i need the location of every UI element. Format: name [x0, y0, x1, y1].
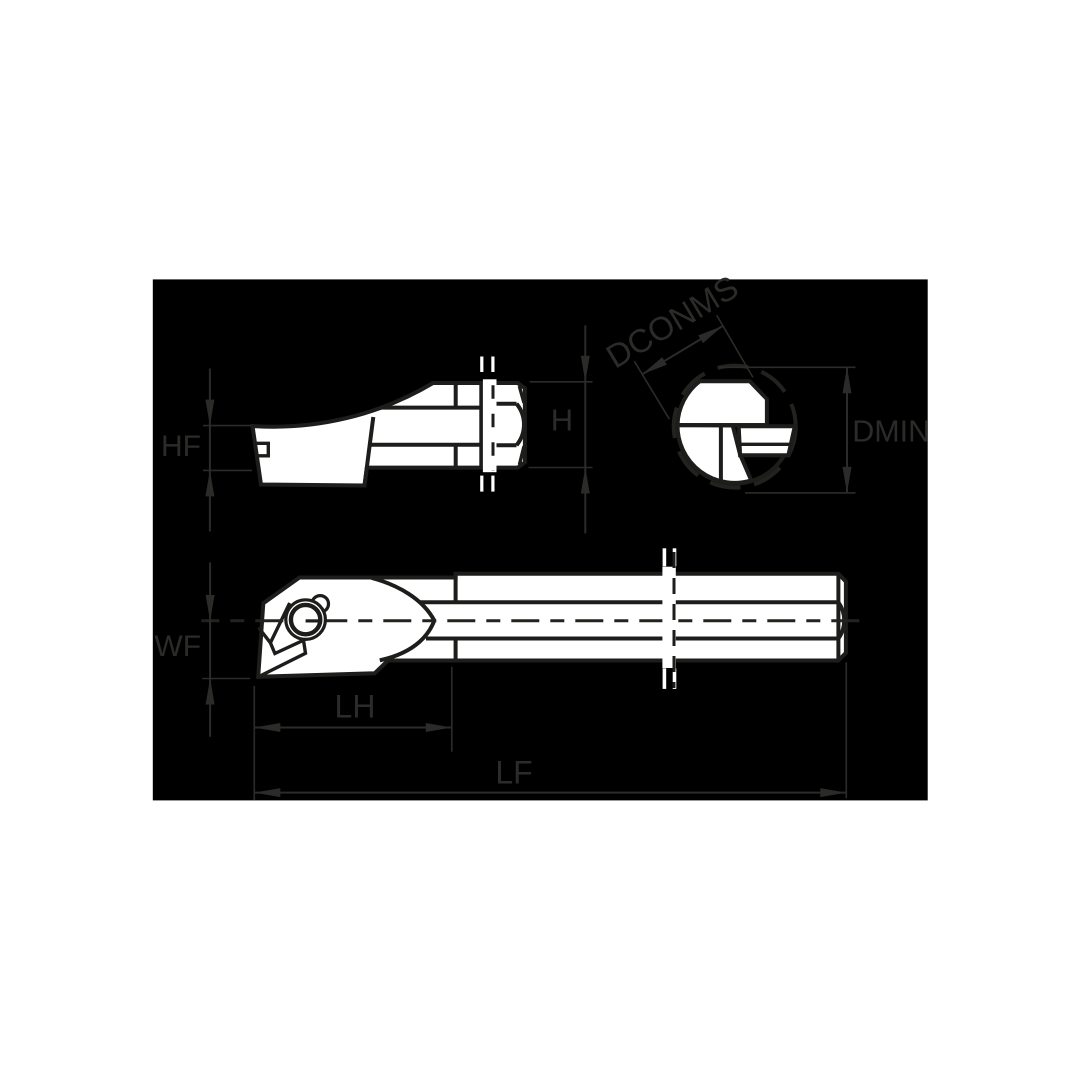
svg-text:LH: LH — [335, 689, 376, 725]
svg-text:HF: HF — [161, 430, 201, 463]
svg-text:H: H — [551, 403, 573, 438]
svg-text:WF: WF — [154, 630, 201, 663]
svg-text:DMIN: DMIN — [852, 415, 930, 449]
svg-text:LF: LF — [495, 755, 532, 791]
